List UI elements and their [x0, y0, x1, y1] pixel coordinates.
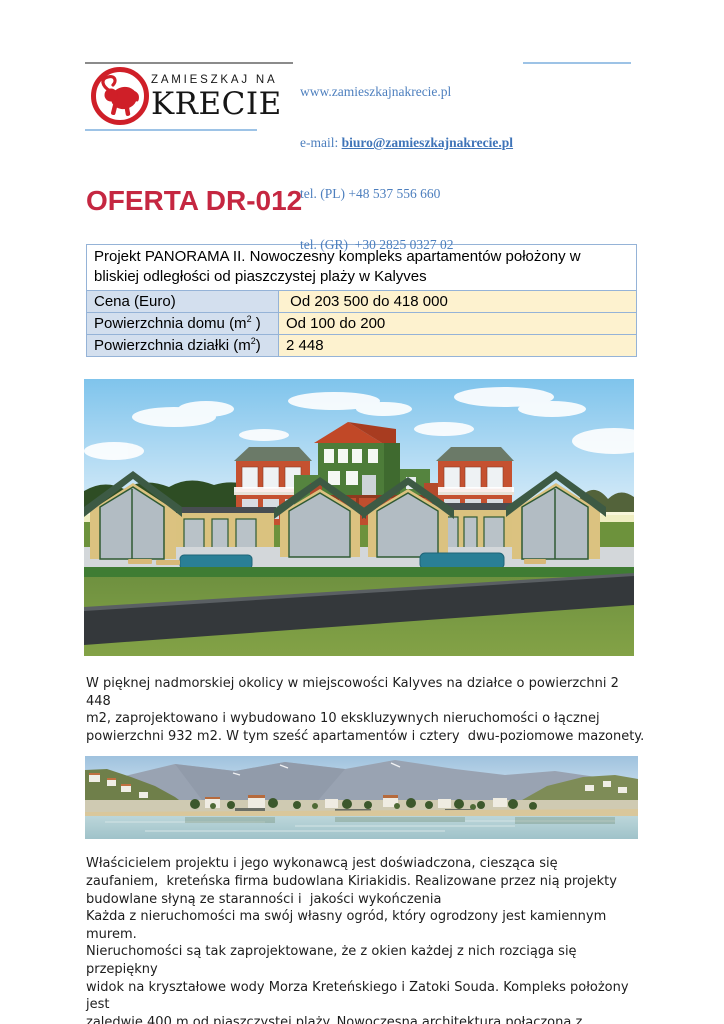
phone-gr: tel. (GR) +30 2825 0327 02 — [300, 236, 513, 253]
plot-area-label-cell: Powierzchnia działki (m2) — [87, 335, 279, 357]
text-line: Nieruchomości są tak zaprojektowane, że … — [86, 943, 646, 978]
email-label: e-mail: — [300, 135, 342, 150]
intro-paragraph: W pięknej nadmorskiej okolicy w miejscow… — [86, 675, 646, 745]
plot-area-value-cell: 2 448 — [279, 335, 637, 357]
text-line: powierzchni 932 m2. W tym sześć apartame… — [86, 728, 646, 746]
text-line: Właścicielem projektu i jego wykonawcą j… — [86, 855, 646, 873]
company-logo: ZAMIESZKAJ NA KRECIE — [151, 74, 282, 121]
text-line: zaledwie 400 m od piaszczystej plaży. No… — [86, 1014, 646, 1024]
logo-name: KRECIE — [151, 88, 282, 121]
document-page: ZAMIESZKAJ NA KRECIE www.zamieszkajnakre… — [0, 0, 724, 1024]
text-line: budowlane słyną ze staranności i jakości… — [86, 891, 646, 909]
table-row: Powierzchnia domu (m2 ) Od 100 do 200 — [87, 313, 637, 335]
details-paragraph: Właścicielem projektu i jego wykonawcą j… — [86, 855, 646, 1024]
text-line: m2, zaprojektowano i wybudowano 10 ekskl… — [86, 710, 646, 728]
house-area-label-cell: Powierzchnia domu (m2 ) — [87, 313, 279, 335]
text-line: Każda z nieruchomości ma swój własny ogr… — [86, 908, 646, 943]
text-line: W pięknej nadmorskiej okolicy w miejscow… — [86, 675, 646, 710]
price-label-cell: Cena (Euro) — [87, 291, 279, 313]
email-link[interactable]: biuro@zamieszkajnakrecie.pl — [342, 135, 513, 150]
website-text: www.zamieszkajnakrecie.pl — [300, 83, 513, 100]
price-value-cell: Od 203 500 do 418 000 — [279, 291, 637, 313]
email-line: e-mail: biuro@zamieszkajnakrecie.pl — [300, 134, 513, 151]
divider-top-right — [523, 62, 631, 64]
beach-photo — [85, 756, 638, 839]
logo-tagline: ZAMIESZKAJ NA — [151, 74, 282, 86]
house-area-value-cell: Od 100 do 200 — [279, 313, 637, 335]
complex-render-image — [84, 379, 634, 656]
phone-pl: tel. (PL) +48 537 556 660 — [300, 185, 513, 202]
contact-block: www.zamieszkajnakrecie.pl e-mail: biuro@… — [300, 49, 513, 287]
text-line: widok na kryształowe wody Morza Kreteńsk… — [86, 979, 646, 1014]
divider-logo-bottom — [85, 129, 257, 131]
divider-top-left — [85, 62, 293, 64]
letterhead: ZAMIESZKAJ NA KRECIE www.zamieszkajnakre… — [0, 0, 724, 165]
table-row: Cena (Euro) Od 203 500 do 418 000 — [87, 291, 637, 313]
table-row: Powierzchnia działki (m2) 2 448 — [87, 335, 637, 357]
bull-icon — [90, 66, 150, 126]
text-line: zaufaniem, kreteńska firma budowlana Kir… — [86, 873, 646, 891]
